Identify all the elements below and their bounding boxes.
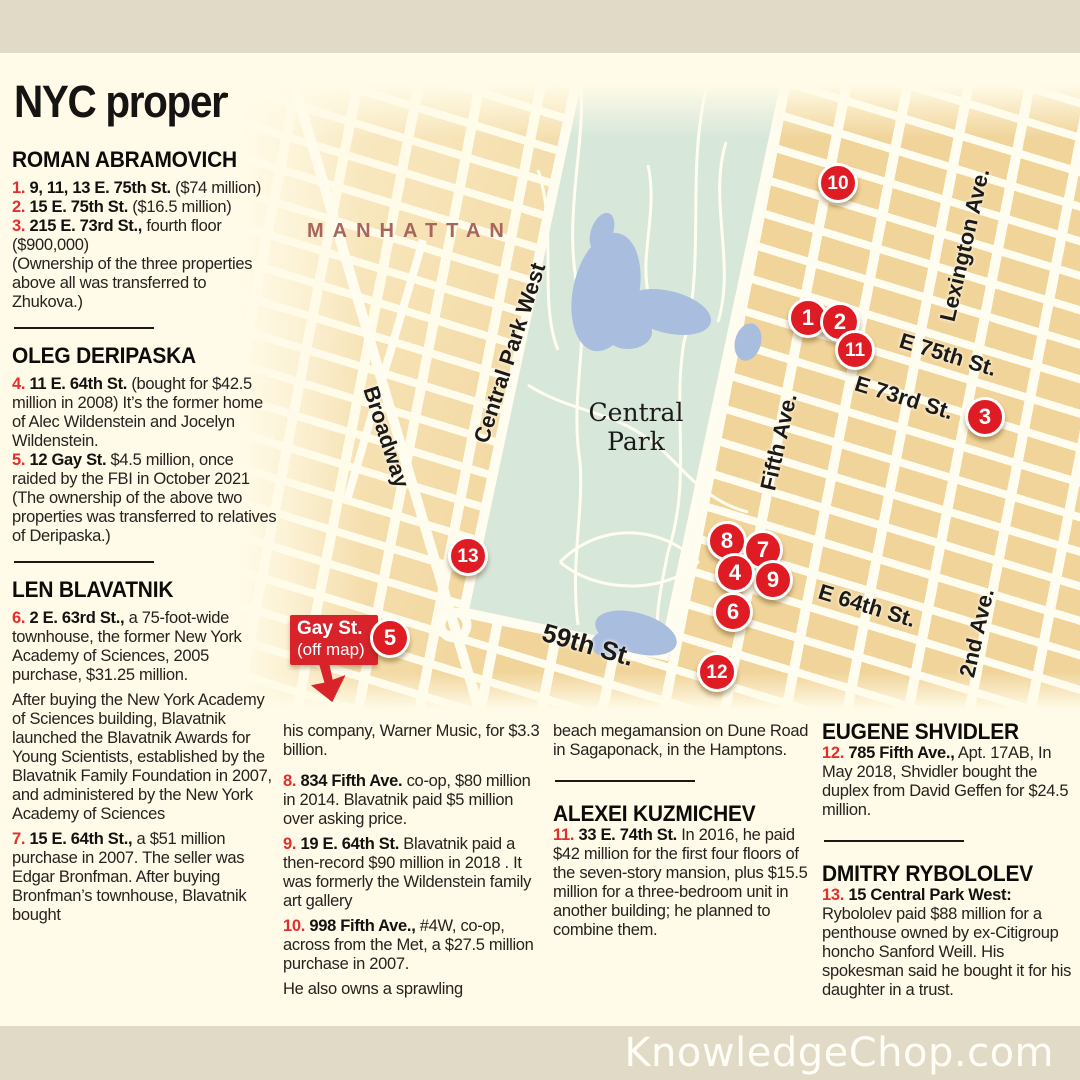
item-number: 13. xyxy=(822,886,844,904)
section-divider xyxy=(14,561,154,563)
item-address: 2 E. 63rd St., xyxy=(29,609,124,627)
listing-item-4: 4. 11 E. 64th St. (bought for $42.5 mill… xyxy=(12,375,280,451)
item-number: 9. xyxy=(283,835,296,853)
hamptons-lead-in: He also owns a sprawling xyxy=(283,980,545,999)
listing-item-13: 13. 15 Central Park West: Rybololev paid… xyxy=(822,886,1074,1000)
central-park-label-line1: Central xyxy=(589,398,684,427)
column-two: his company, Warner Music, for $3.3 bill… xyxy=(283,722,545,999)
listing-item-3: 3. 215 E. 73rd St., fourth floor ($900,0… xyxy=(12,217,280,255)
item-address: 19 E. 64th St. xyxy=(300,835,399,853)
central-park-label: Central Park xyxy=(589,398,684,456)
map-marker-10: 10 xyxy=(818,163,858,203)
listing-item-6: 6. 2 E. 63rd St., a 75-foot-wide townhou… xyxy=(12,609,280,685)
blavatnik-paragraph: After buying the New York Academy of Sci… xyxy=(12,691,280,824)
heading-shvidler: EUGENE SHVIDLER xyxy=(822,722,1061,741)
section-divider xyxy=(555,780,695,782)
item-text: ($16.5 million) xyxy=(128,198,231,216)
listing-item-1: 1. 9, 11, 13 E. 75th St. ($74 million) xyxy=(12,179,280,198)
column-left: ROMAN ABRAMOVICH 1. 9, 11, 13 E. 75th St… xyxy=(12,150,280,925)
item-number: 12. xyxy=(822,744,844,762)
item-address: 785 Fifth Ave., xyxy=(848,744,954,762)
section-divider xyxy=(14,327,154,329)
item-address: 11 E. 64th St. xyxy=(29,375,127,393)
hamptons-continued: beach megamansion on Dune Road in Sagapo… xyxy=(553,722,815,760)
blavatnik-continued: his company, Warner Music, for $3.3 bill… xyxy=(283,722,545,760)
item-number: 11. xyxy=(553,826,574,844)
callout-off-map-note: (off map) xyxy=(297,639,378,660)
manhattan-label: MANHATTAN xyxy=(307,220,513,243)
item-address: 12 Gay St. xyxy=(29,451,106,469)
item-address: 9, 11, 13 E. 75th St. xyxy=(29,179,170,197)
map-marker-11: 11 xyxy=(835,330,875,370)
item-text: ($74 million) xyxy=(171,179,261,197)
top-frame-bar xyxy=(0,0,1080,53)
bottom-frame-bar: KnowledgeChop.com xyxy=(0,1026,1080,1080)
map-fade-bottom xyxy=(228,672,1080,718)
heading-deripaska: OLEG DERIPASKA xyxy=(12,346,267,365)
item-address: 15 E. 64th St., xyxy=(29,830,132,848)
item-number: 6. xyxy=(12,609,25,627)
item-address: 15 Central Park West: xyxy=(848,886,1011,904)
ownership-note-abramovich: (Ownership of the three properties above… xyxy=(12,255,280,312)
item-address: 834 Fifth Ave. xyxy=(300,772,402,790)
item-number: 10. xyxy=(283,917,305,935)
item-address: 215 E. 73rd St., xyxy=(29,217,142,235)
gay-st-callout: Gay St. (off map) xyxy=(290,615,378,665)
map-marker-9: 9 xyxy=(753,560,793,600)
infographic: NYC properties bought by Russian oligarc… xyxy=(0,0,1080,1080)
item-number: 5. xyxy=(12,451,25,469)
watermark: KnowledgeChop.com xyxy=(624,1030,1080,1076)
heading-kuzmichev: ALEXEI KUZMICHEV xyxy=(553,804,802,823)
map-marker-4: 4 xyxy=(715,553,755,593)
callout-street-name: Gay St. xyxy=(297,618,378,639)
map-marker-5: 5 xyxy=(370,618,410,658)
item-number: 8. xyxy=(283,772,296,790)
listing-item-10: 10. 998 Fifth Ave., #4W, co-op, across f… xyxy=(283,917,545,974)
item-address: 15 E. 75th St. xyxy=(29,198,128,216)
listing-item-5: 5. 12 Gay St. $4.5 million, once raided … xyxy=(12,451,280,489)
conservatory-pond xyxy=(731,320,766,363)
listing-item-11: 11. 33 E. 74th St. In 2016, he paid $42 … xyxy=(553,826,815,940)
listing-item-9: 9. 19 E. 64th St. Blavatnik paid a then-… xyxy=(283,835,545,911)
listing-item-7: 7. 15 E. 64th St., a $51 million purchas… xyxy=(12,830,280,925)
listing-item-8: 8. 834 Fifth Ave. co-op, $80 million in … xyxy=(283,772,545,829)
heading-abramovich: ROMAN ABRAMOVICH xyxy=(12,150,267,169)
column-three: beach megamansion on Dune Road in Sagapo… xyxy=(553,722,815,940)
map-marker-3: 3 xyxy=(965,397,1005,437)
item-number: 7. xyxy=(12,830,25,848)
item-number: 3. xyxy=(12,217,25,235)
section-divider xyxy=(824,840,964,842)
map-marker-6: 6 xyxy=(713,592,753,632)
map-marker-12: 12 xyxy=(697,652,737,692)
central-park-lake-lobe xyxy=(604,315,652,349)
item-number: 2. xyxy=(12,198,25,216)
item-number: 1. xyxy=(12,179,25,197)
ownership-note-deripaska: (The ownership of the above two properti… xyxy=(12,489,280,546)
item-text: Rybololev paid $88 million for a penthou… xyxy=(822,905,1071,999)
item-address: 33 E. 74th St. xyxy=(578,826,677,844)
heading-blavatnik: LEN BLAVATNIK xyxy=(12,580,267,599)
listing-item-2: 2. 15 E. 75th St. ($16.5 million) xyxy=(12,198,280,217)
column-four: EUGENE SHVIDLER 12. 785 Fifth Ave., Apt.… xyxy=(822,722,1074,1000)
item-number: 4. xyxy=(12,375,25,393)
heading-rybololev: DMITRY RYBOLOLEV xyxy=(822,864,1061,883)
map-marker-13: 13 xyxy=(448,536,488,576)
central-park-label-line2: Park xyxy=(589,427,684,456)
item-address: 998 Fifth Ave., xyxy=(309,917,415,935)
listing-item-12: 12. 785 Fifth Ave., Apt. 17AB, In May 20… xyxy=(822,744,1074,820)
